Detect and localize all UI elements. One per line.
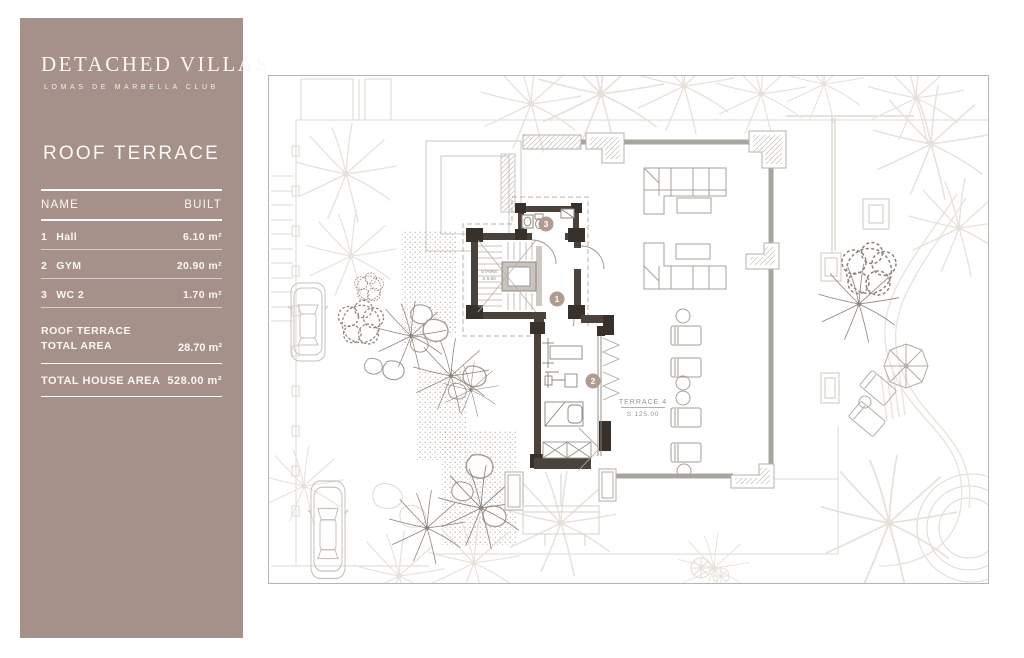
- row-value: 6.10 m²: [183, 231, 222, 243]
- table-row: 2 GYM 20.90 m²: [41, 250, 222, 279]
- subtotal-label-1: ROOF TERRACE: [41, 325, 131, 337]
- table-row: 3 WC 2 1.70 m²: [41, 279, 222, 308]
- page-title: ROOF TERRACE: [41, 143, 222, 165]
- car: [288, 283, 328, 361]
- terrace-name-text: TERRACE 4: [619, 399, 667, 406]
- table-header: NAME BUILT: [41, 189, 222, 221]
- stairs-name-text: STAIRS: [481, 269, 497, 274]
- total-value: 528.00 m²: [167, 375, 222, 387]
- terrace-label: TERRACE 4 S 125.00: [619, 399, 667, 418]
- subtotal-value: 28.70 m²: [178, 342, 222, 354]
- row-name: Hall: [56, 231, 77, 243]
- car: [308, 481, 348, 579]
- room-marker-gym: 2: [586, 374, 601, 389]
- marker-num: 3: [544, 219, 549, 229]
- marker-num: 1: [555, 294, 560, 304]
- row-value: 20.90 m²: [177, 260, 222, 272]
- floor-plan-drawing: TERRACE 4 S 125.00: [269, 76, 988, 583]
- row-num: 3: [41, 289, 47, 301]
- row-value: 1.70 m²: [183, 289, 222, 301]
- col-name: NAME: [41, 199, 79, 211]
- brochure-page: DETACHED VILLAS LOMAS DE MARBELLA CLUB R…: [0, 0, 1024, 658]
- sidebar: DETACHED VILLAS LOMAS DE MARBELLA CLUB R…: [20, 18, 243, 638]
- row-num: 2: [41, 260, 47, 272]
- room-marker-wc: 3: [539, 217, 554, 232]
- brand-subtitle: LOMAS DE MARBELLA CLUB: [41, 84, 222, 91]
- subtotal-label-2: TOTAL AREA: [41, 340, 112, 352]
- terrace-furniture: [644, 168, 726, 478]
- brand: DETACHED VILLAS LOMAS DE MARBELLA CLUB: [41, 52, 222, 91]
- room-marker-hall: 1: [550, 292, 565, 307]
- cars: [288, 283, 348, 579]
- floor-plan-frame: TERRACE 4 S 125.00: [268, 75, 989, 584]
- row-num: 1: [41, 231, 47, 243]
- terrace-area-text: S 125.00: [627, 411, 659, 418]
- total-row: TOTAL HOUSE AREA 528.00 m²: [41, 364, 222, 397]
- palm-trees-light: [269, 76, 988, 583]
- total-label: TOTAL HOUSE AREA: [41, 375, 160, 387]
- marker-num: 2: [591, 376, 596, 386]
- subtotal-row: ROOF TERRACE TOTAL AREA 28.70 m²: [41, 324, 222, 364]
- row-name: GYM: [56, 260, 81, 272]
- stairs-area-text: S 5.60: [482, 276, 496, 281]
- row-name: WC 2: [56, 289, 84, 301]
- brand-title: DETACHED VILLAS: [41, 52, 222, 77]
- table-row: 1 Hall 6.10 m²: [41, 221, 222, 250]
- area-table: NAME BUILT 1 Hall 6.10 m² 2 GYM 20.90 m²: [41, 189, 222, 397]
- col-built: BUILT: [184, 199, 222, 211]
